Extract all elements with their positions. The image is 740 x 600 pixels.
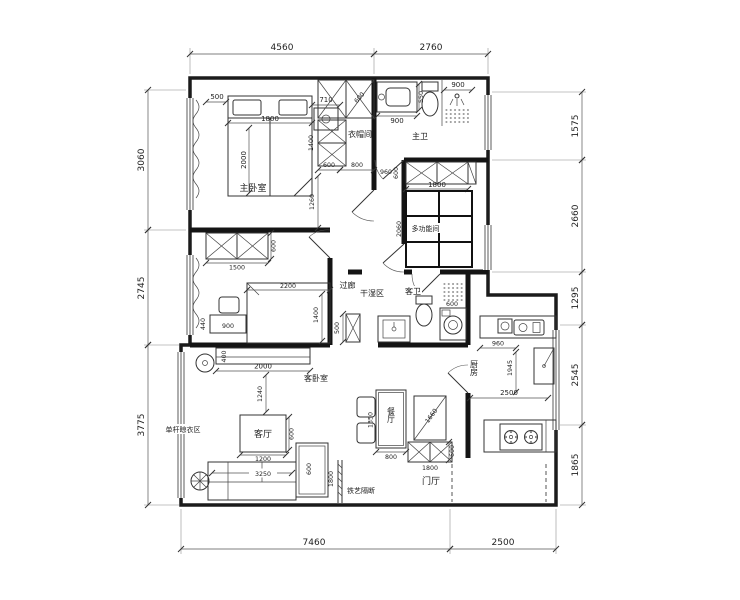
floor-lamp (196, 354, 214, 372)
label-guest-bath: 客卫 (405, 286, 421, 296)
dim-top-2: 2760 (420, 43, 443, 53)
dim-right-4: 2545 (571, 364, 581, 387)
kitchen: 960 1945 2500 厨房 (470, 316, 557, 452)
shoe-cabinet (408, 442, 452, 462)
dim-bath2-cabinet: 500 (334, 322, 341, 334)
dim-tv-depth: 400 (221, 350, 228, 362)
master-bath: 900 550 900 主卫 (377, 80, 472, 141)
dim-right-5: 1865 (571, 454, 581, 477)
bed (228, 96, 312, 196)
dim-tv-width: 2000 (254, 363, 272, 371)
dim-cloak-wall: 1260 (309, 194, 316, 210)
dim-top-1: 4560 (271, 43, 294, 53)
dim-living-gap: 1240 (257, 386, 264, 402)
multi-function-room: 960 600 1800 2060 多功能间 (380, 162, 476, 267)
dim-living-table-depth: 600 (289, 428, 296, 440)
dim-master-bed-length: 2000 (240, 151, 248, 169)
dim-bottom-2: 2500 (492, 538, 515, 548)
shower-floor (446, 110, 470, 122)
label-iron-partition: 铁艺隔断 (347, 486, 375, 495)
foyer: 门厅 (422, 464, 546, 502)
dim-cloak-column: 1400 (308, 135, 315, 151)
wardrobe-column (318, 120, 346, 166)
dim-master-bed-width: 1800 (261, 115, 279, 123)
dim-gb-wardrobe-depth: 600 (271, 240, 278, 252)
dim-multi-cabinet: 1800 (428, 181, 446, 189)
dim-kitchen-width: 2500 (500, 389, 518, 397)
dim-shower: 900 (451, 81, 464, 89)
label-kitchen: 厨房 (470, 360, 479, 377)
dim-multi-tatami: 2060 (396, 221, 403, 237)
worktop-north (480, 316, 556, 338)
dim-chain-bottom: 7460 2500 (181, 509, 556, 554)
desk-chair (219, 297, 239, 313)
dim-right-1: 1575 (571, 115, 581, 138)
shower-head-icon (450, 94, 464, 106)
label-master-bath: 主卫 (412, 131, 428, 141)
floor-plan-canvas: 500 1800 2000 710 主卧室 600 1400 600 800 1… (0, 0, 740, 600)
iron-partition (338, 460, 342, 503)
label-cloakroom: 衣帽间 (348, 129, 372, 139)
dim-right-2: 2660 (571, 204, 581, 227)
dim-chain-right: 1575 2660 1295 2545 1865 (492, 92, 586, 505)
worktop-south-stove (484, 420, 556, 452)
washing-machine (440, 308, 466, 340)
dim-partition: 1800 (328, 471, 335, 487)
guest-bedroom: 1500 600 2200 1400 900 440 (200, 233, 330, 343)
dim-dining-cabinet: 1660 (424, 408, 439, 425)
dim-left-3: 3775 (137, 414, 147, 437)
label-dry-wet: 干湿区 (360, 289, 384, 298)
label-corridor: 过廊 (340, 280, 356, 290)
dim-multi-depth: 600 (393, 167, 400, 179)
corridor: 过廊 (338, 280, 357, 290)
dim-left-2: 2745 (137, 277, 147, 300)
dim-washer: 600 (446, 301, 458, 308)
dim-chain-top: 4560 2760 (190, 43, 488, 74)
label-master-bedroom: 主卧室 (239, 182, 266, 194)
dim-gb-side: 440 (200, 318, 207, 330)
dim-dining-table: 1350 (368, 412, 375, 428)
dim-cloak-seg-b: 800 (351, 162, 363, 169)
dim-basin: 900 (390, 117, 403, 125)
plant (191, 472, 209, 490)
guest-bath-zone: 500 600 干湿区 客卫 (334, 284, 466, 342)
label-drying-zone: 单杆晾衣区 (166, 425, 201, 434)
wash-basin-cabinet (378, 316, 410, 342)
sofa (208, 462, 296, 500)
dim-chaise: 600 (306, 463, 313, 475)
vanity-sink (377, 82, 417, 112)
storage-cabinet (346, 314, 360, 342)
dim-gb-bed-width: 1400 (313, 307, 320, 323)
dim-right-3: 1295 (571, 287, 581, 310)
dim-kitchen-worktop: 960 (492, 341, 504, 348)
dim-gb-bed-length: 2200 (280, 283, 296, 290)
toilet (416, 296, 432, 326)
dim-sofa: 3250 (255, 471, 271, 478)
doors (309, 160, 468, 393)
label-guest-bedroom: 客卧室 (304, 373, 328, 383)
dim-bottom-1: 7460 (303, 538, 326, 548)
dim-gb-wardrobe: 1500 (229, 265, 245, 272)
label-dining: 餐厅 (387, 407, 396, 423)
label-multi-function: 多功能间 (412, 224, 440, 233)
dim-cloak-seg-a: 600 (323, 162, 335, 169)
dim-kitchen-depth: 1945 (507, 360, 514, 376)
dim-shoe-cabinet: 1800 (422, 465, 438, 472)
dining-room: 餐厅 1350 800 1660 600 1800 (357, 390, 456, 472)
floor-plan-drawing: 500 1800 2000 710 主卧室 600 1400 600 800 1… (0, 0, 740, 600)
dim-gb-desk: 900 (222, 323, 234, 330)
label-living: 客厅 (254, 428, 272, 440)
cloakroom: 600 1400 600 800 1260 衣帽间 (308, 80, 374, 228)
dim-dining-width: 800 (385, 454, 397, 461)
shower-floor (444, 284, 464, 300)
dim-left-1: 3060 (137, 148, 147, 171)
dim-multi-niche: 960 (380, 169, 392, 176)
label-foyer: 门厅 (422, 475, 440, 487)
dim-master-window: 500 (210, 93, 223, 101)
wardrobe (206, 233, 268, 259)
